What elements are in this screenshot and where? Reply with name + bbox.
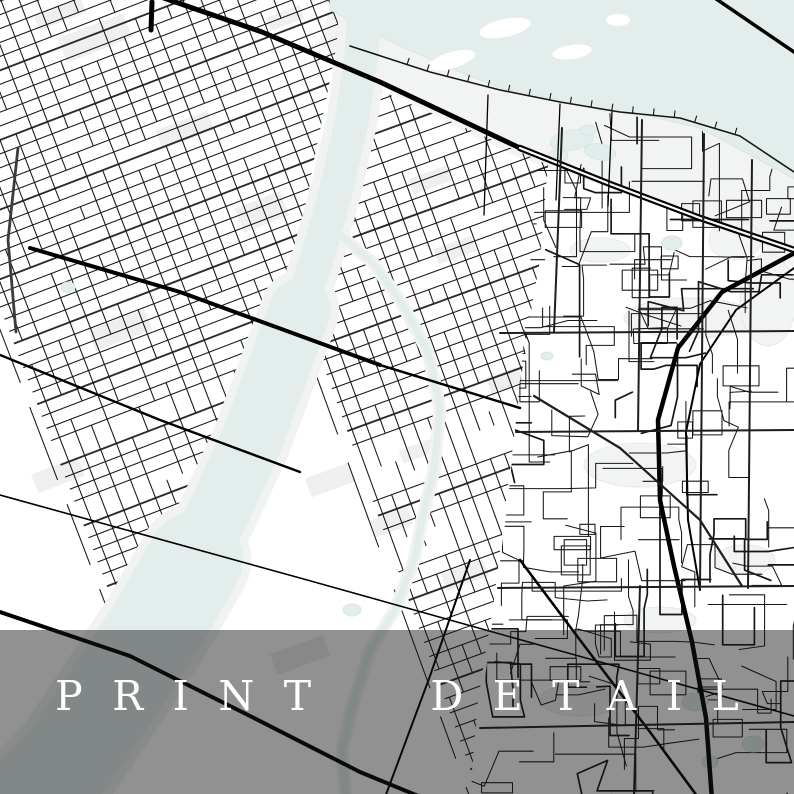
print-detail-label: PRINT DETAIL [26, 676, 769, 717]
map-print-detail-image: PRINT DETAIL [0, 0, 794, 794]
print-detail-banner: PRINT DETAIL [0, 630, 794, 794]
